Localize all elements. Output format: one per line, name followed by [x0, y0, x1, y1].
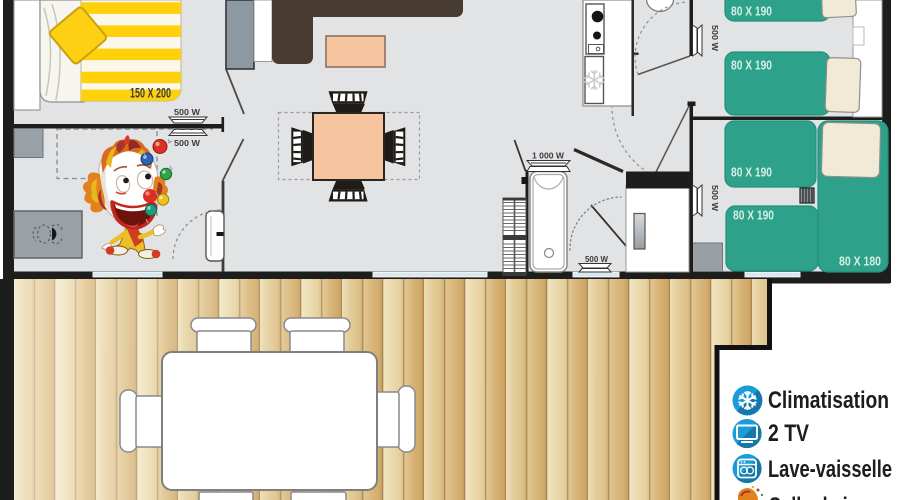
svg-text:Lave-vaisselle: Lave-vaisselle [768, 456, 892, 483]
svg-text:2 TV: 2 TV [768, 420, 809, 447]
svg-text:500 W: 500 W [710, 25, 720, 52]
svg-text:80 X 190: 80 X 190 [731, 59, 772, 73]
svg-text:500 W: 500 W [585, 254, 609, 264]
svg-text:500 W: 500 W [710, 185, 720, 212]
svg-text:500 W: 500 W [174, 138, 201, 148]
svg-text:150 X 200: 150 X 200 [130, 85, 171, 101]
svg-text:80 X 190: 80 X 190 [731, 166, 772, 180]
svg-text:Salle de jeux: Salle de jeux [769, 493, 879, 500]
svg-text:80 X 190: 80 X 190 [733, 209, 774, 223]
svg-text:Climatisation: Climatisation [768, 387, 889, 414]
svg-text:500 W: 500 W [174, 107, 201, 117]
svg-text:80 X 190: 80 X 190 [731, 5, 772, 19]
svg-text:1 000 W: 1 000 W [532, 151, 565, 161]
svg-text:80 X 180: 80 X 180 [839, 255, 881, 269]
